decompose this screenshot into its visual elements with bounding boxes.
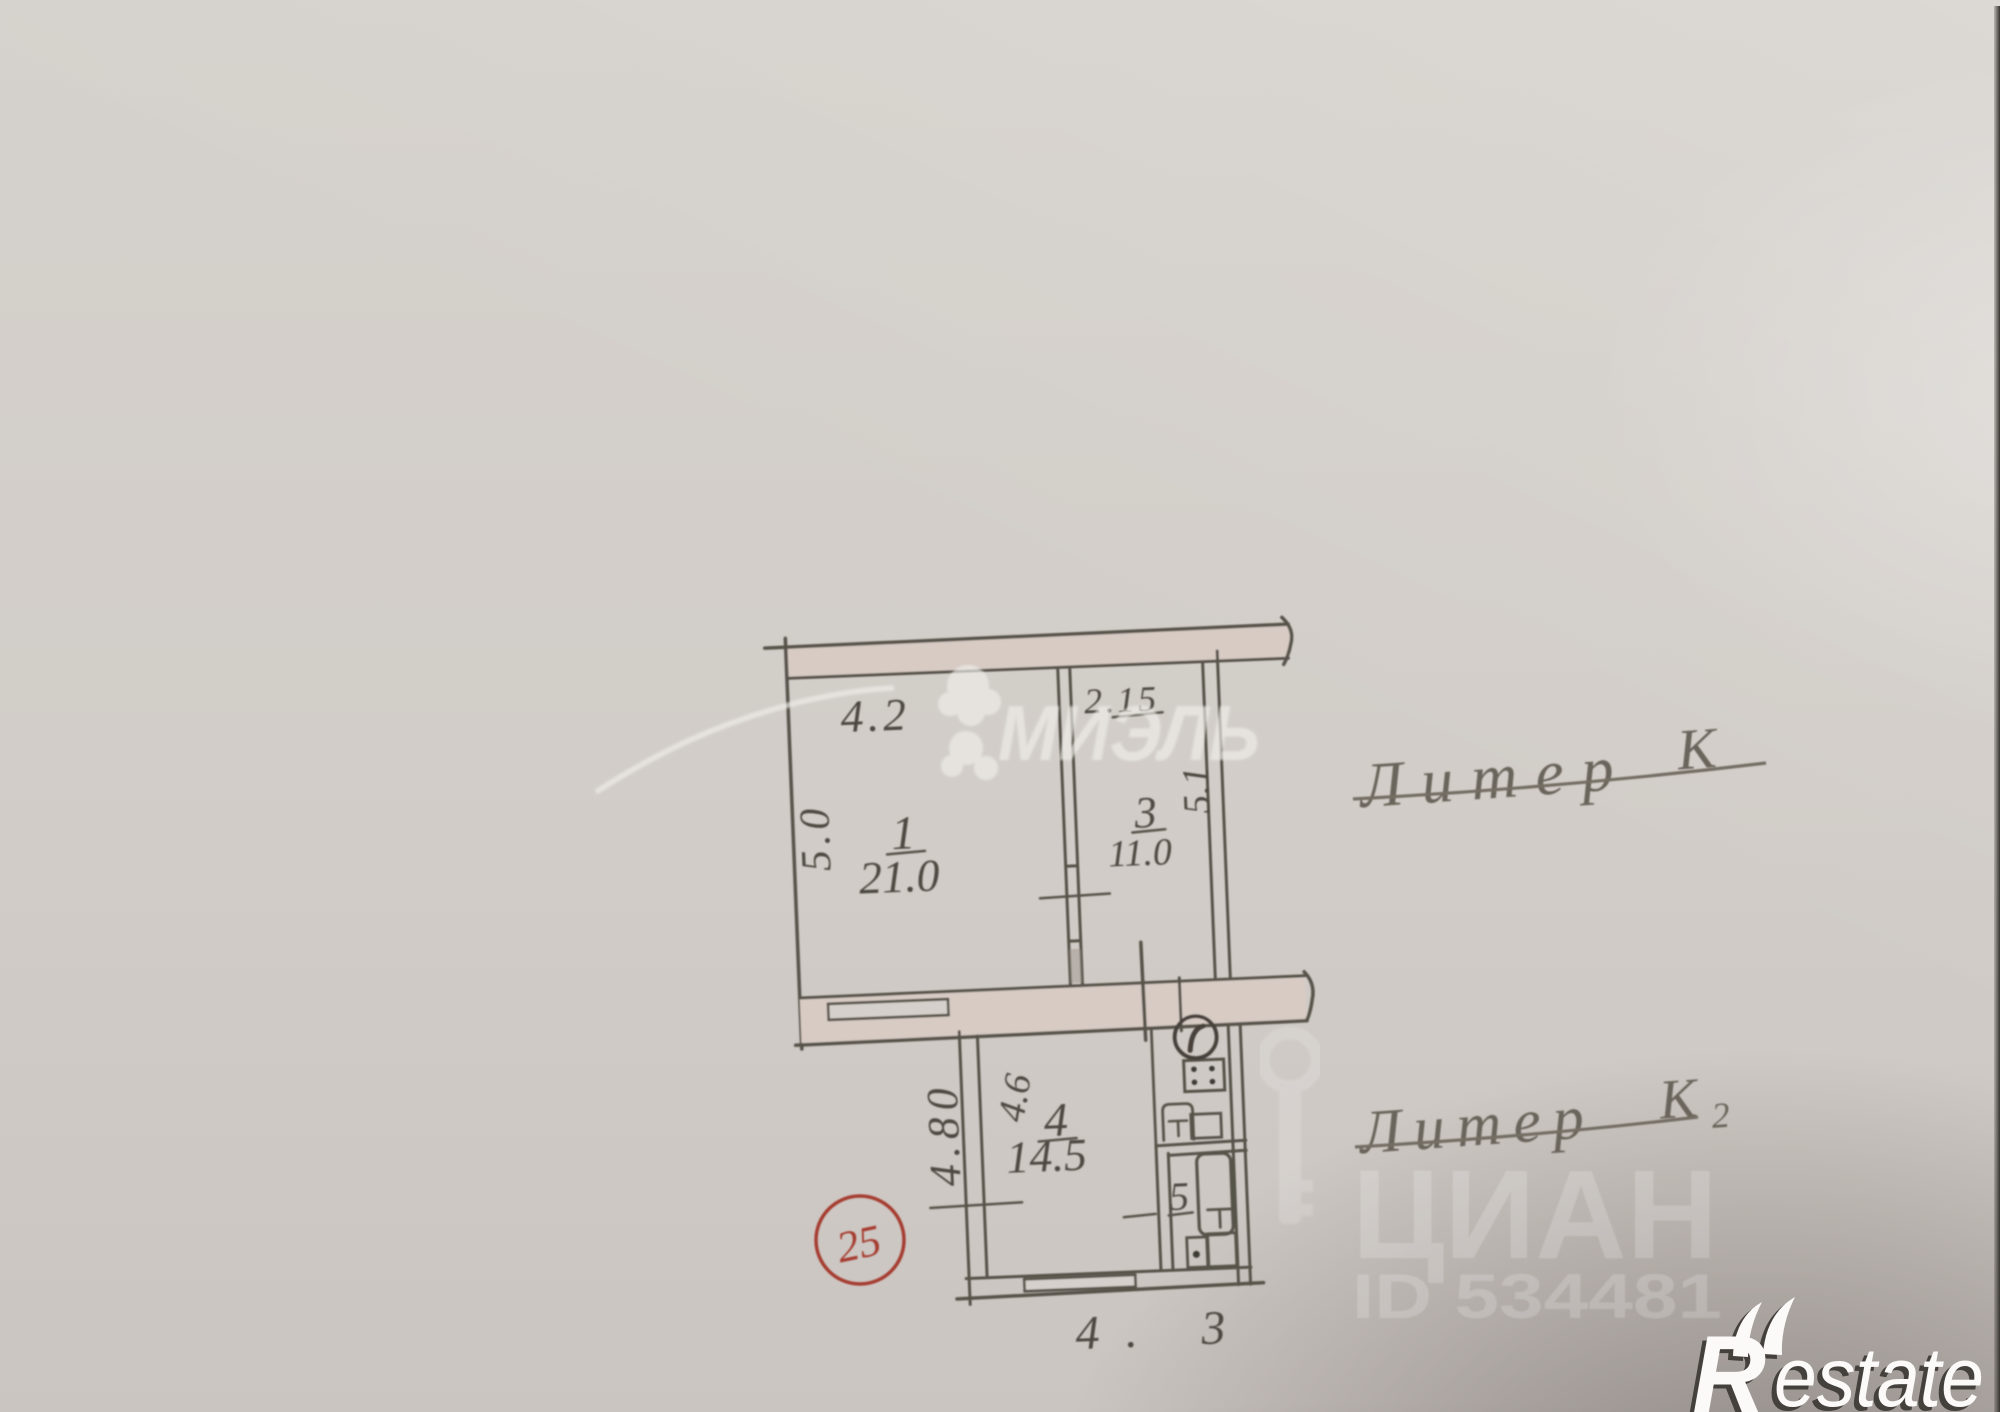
svg-text:4.2: 4.2: [839, 688, 910, 742]
svg-text:11.0: 11.0: [1107, 831, 1172, 876]
svg-text:14.5: 14.5: [1005, 1129, 1087, 1183]
svg-text:2: 2: [1710, 1095, 1731, 1136]
svg-text:4. 3: 4. 3: [1074, 1300, 1252, 1360]
svg-text:estate: estate: [1774, 1330, 1984, 1412]
svg-text:5.0: 5.0: [792, 803, 841, 872]
svg-text:21.0: 21.0: [858, 849, 940, 903]
svg-text:Литер: Литер: [1355, 731, 1633, 821]
svg-text:R: R: [1692, 1313, 1766, 1412]
svg-text:МИЭЛЬ: МИЭЛЬ: [998, 689, 1260, 777]
svg-text:4.80: 4.80: [917, 1080, 970, 1187]
svg-text:ID 534481: ID 534481: [1352, 1262, 1722, 1332]
svg-text:25: 25: [832, 1215, 885, 1272]
svg-text:4.6: 4.6: [990, 1071, 1039, 1125]
